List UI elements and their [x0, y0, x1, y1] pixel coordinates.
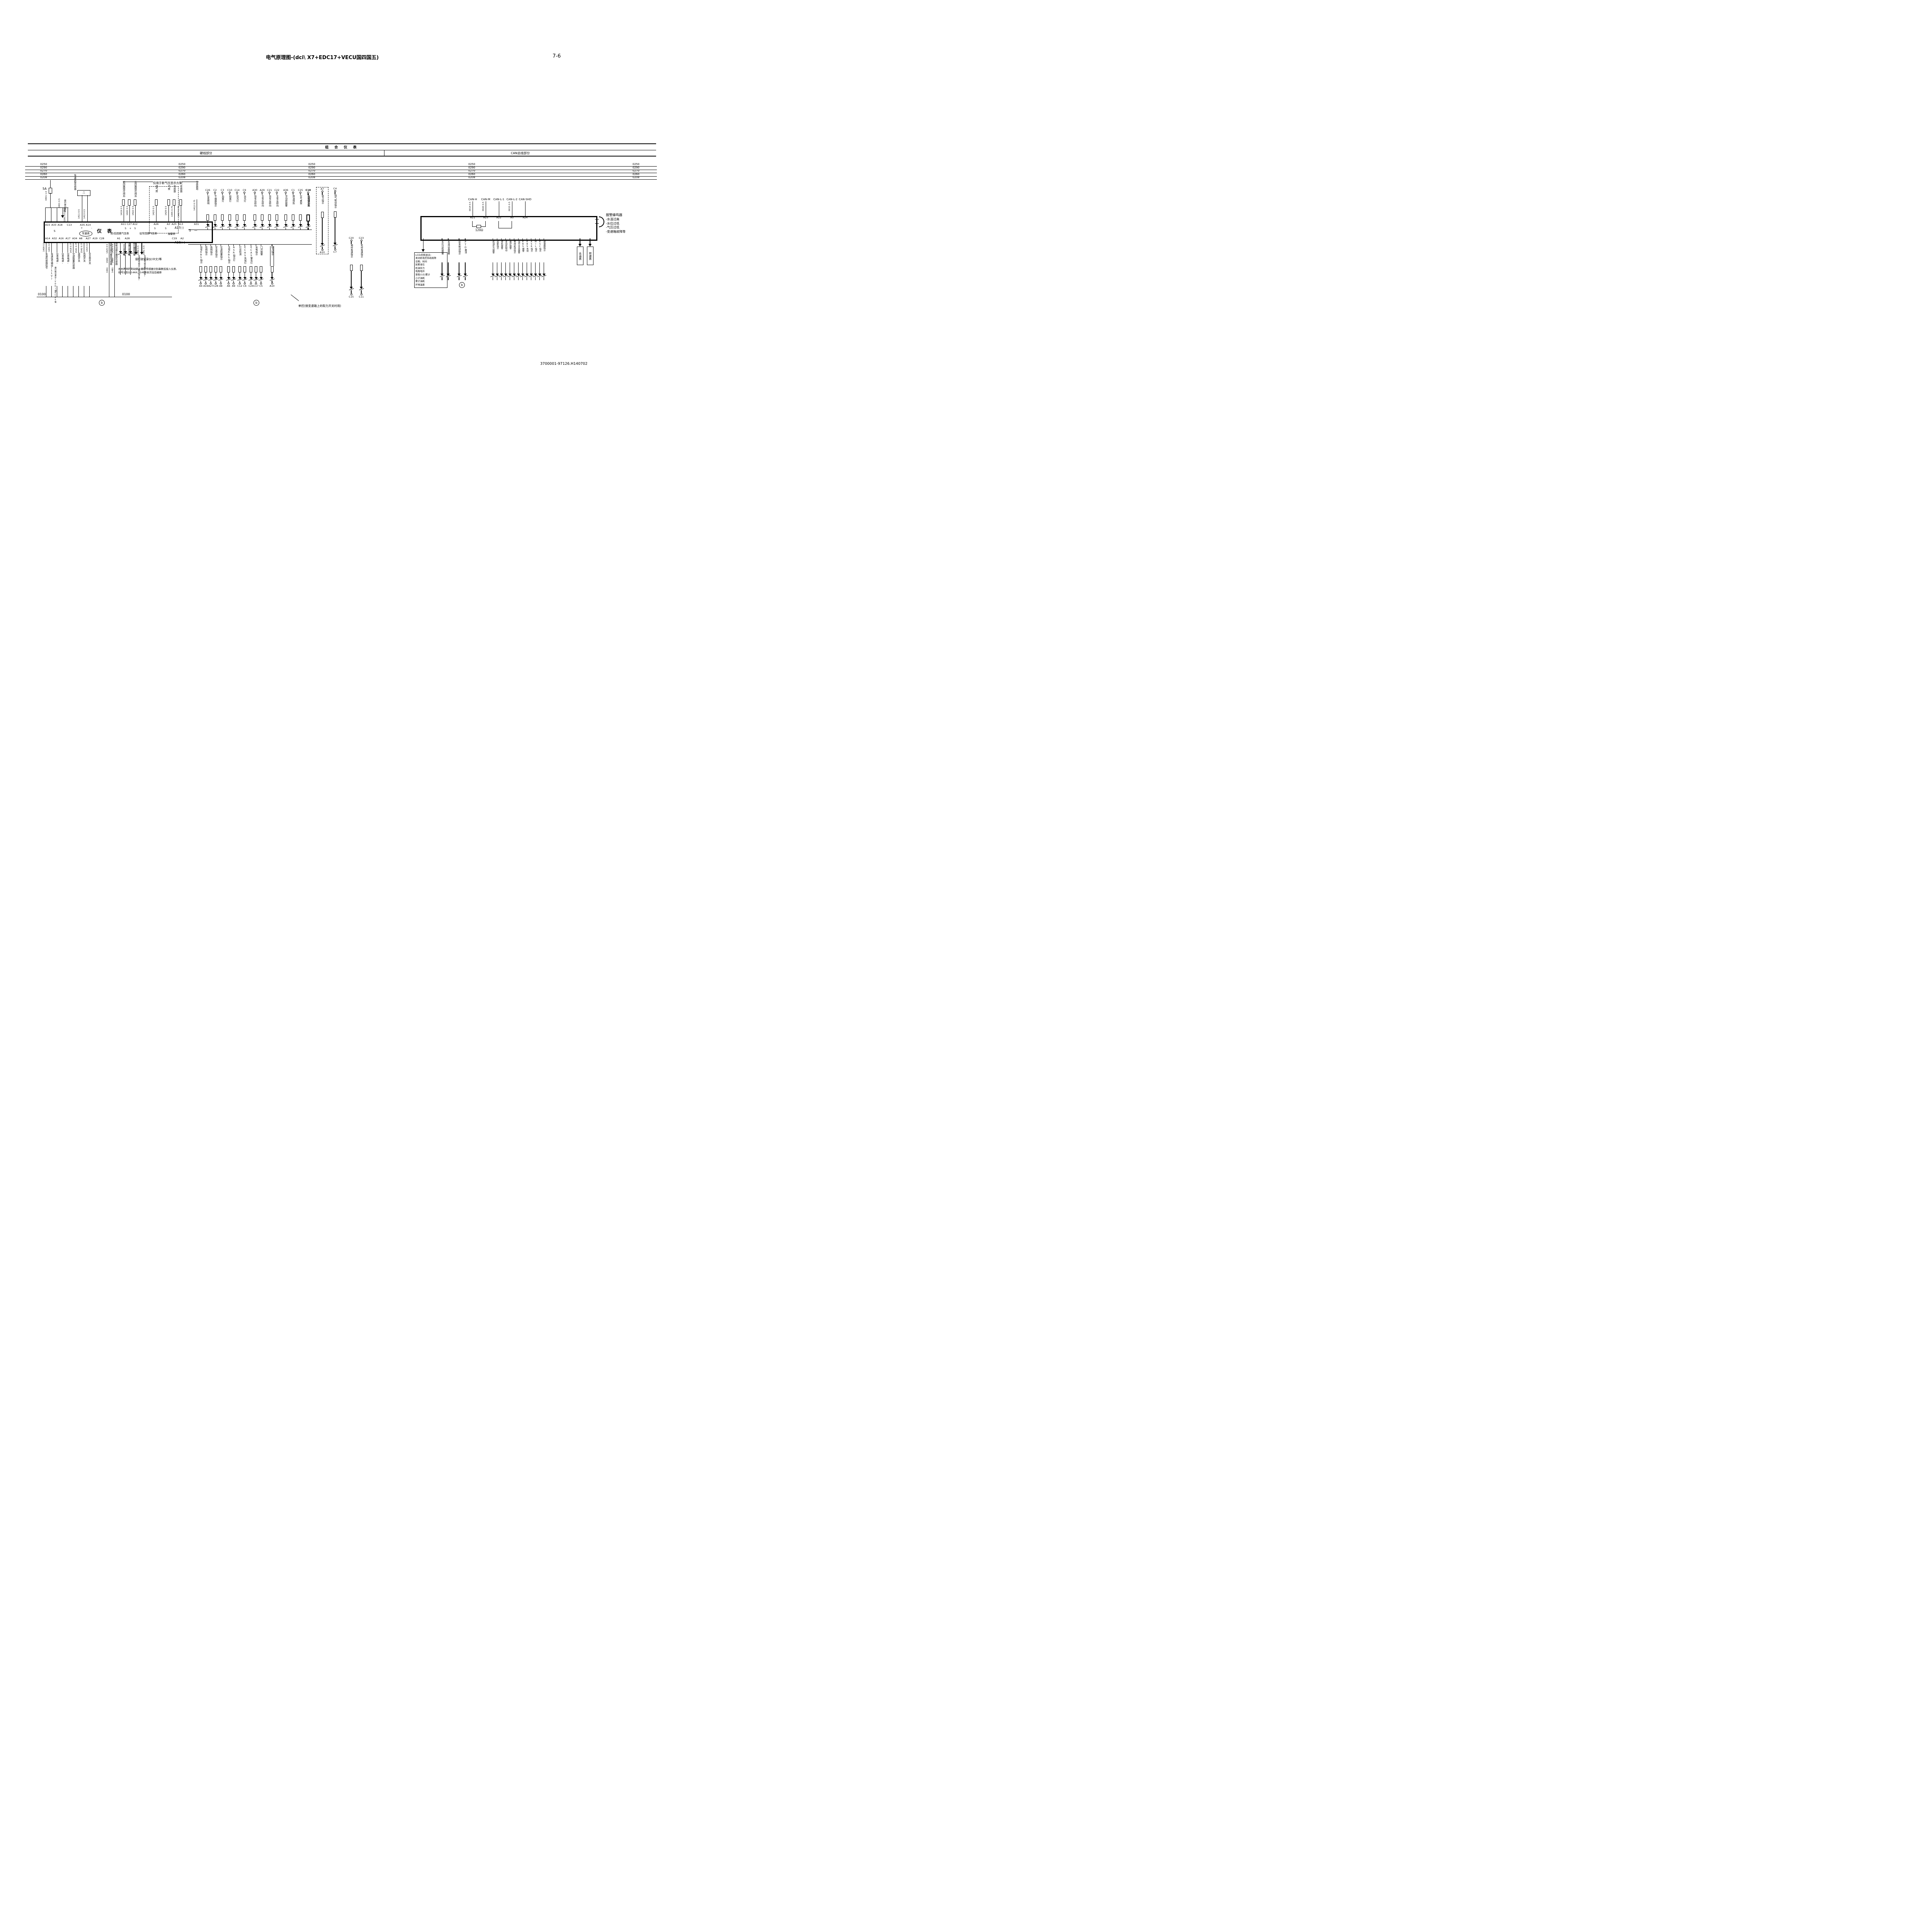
wire-line — [87, 195, 88, 221]
indicator-label: 机油压力报警 — [492, 241, 494, 262]
wire-number: 1409 0.5 — [43, 242, 46, 252]
indicator-column: C1 燃油预热 — [289, 189, 297, 230]
wire-line — [136, 242, 136, 252]
sensor-symbol — [128, 199, 131, 206]
led-icon — [298, 224, 303, 228]
can-column: CAN-H 0014 0.5 A21 — [466, 198, 479, 220]
resistor-symbol — [228, 214, 231, 221]
wire-line — [361, 271, 361, 287]
sensor-column: 传感器地 1412 0.75 A31 — [193, 181, 200, 226]
indicator-label: 水位过低报警 — [441, 241, 443, 262]
indicator-label: ASR指示灯 — [232, 246, 235, 266]
led-icon — [214, 277, 218, 281]
single-control-note: 单控(接变速箱上的取力开关时用) — [298, 304, 341, 308]
wire-line — [125, 242, 126, 251]
pin-label: C27 — [127, 223, 132, 226]
indicator-label: 轴间差速指示 — [350, 244, 352, 265]
buzzer-item: -水温过高 — [606, 218, 626, 222]
indicator-label: 水温过高报警 — [447, 241, 449, 262]
bus-line-negative — [188, 230, 312, 230]
can-columns: CAN-H 0014 0.5 A21 CAN-M 0020 0.5 A23 CA… — [466, 198, 532, 220]
diff-indicator-column: C23 轮间差速指示 C11 — [356, 237, 366, 298]
wire-line — [518, 262, 519, 274]
can-column: CAN-L-1 A22 — [492, 198, 505, 220]
wire-line — [522, 262, 523, 274]
wire-line — [286, 221, 286, 224]
bus-wire-number: 0290 — [633, 166, 639, 170]
io-label: 安全带开关 — [88, 253, 90, 286]
can-indicator-column: ASR指示 — [529, 238, 533, 280]
arrow-down-icon — [422, 249, 425, 252]
pin-label: C25 — [298, 189, 303, 192]
can-indicator-column: 机油压力报警 — [491, 238, 495, 280]
pin-label: A10 — [320, 251, 325, 254]
can-indicator-column: 驻车制动指示 — [456, 238, 462, 280]
wire-line — [211, 272, 211, 277]
indicator-label: 门开报警 — [260, 246, 262, 266]
can-indicator-columns: 驻车制动指示 PTO激活 — [456, 238, 468, 280]
indicator-label: 主车左转向 — [276, 195, 278, 214]
indicator-column: 高档指示 A27 — [208, 244, 213, 288]
bottom-columns: 1409 0.5 车速传感器信号 1431 0.5 车速信号输出(11V) 仪表… — [43, 242, 92, 297]
wire-number: 0020 0.5 — [483, 202, 485, 211]
wire-line — [595, 223, 599, 224]
wire-line — [493, 262, 493, 274]
warning-led-column: 油量过低报警 — [123, 242, 128, 284]
wire-line — [510, 277, 510, 280]
pin-label: A23 — [483, 216, 488, 219]
bottom-pin-group: C19A2 — [172, 237, 189, 240]
indicator-columns: 灯丝检测 C12 ECAS失效灯 C6 — [237, 244, 247, 288]
circle-b-mark: b — [459, 282, 465, 288]
wire-line — [498, 228, 512, 228]
indicator-columns: A36 浮动桥报警 C1 燃油预热 C25 — [282, 189, 304, 230]
wire-line — [590, 238, 590, 244]
resistor-symbol — [292, 214, 294, 221]
indicator-column: C22 主车左转向 — [273, 189, 281, 230]
document-number: 3700001-97126.H140702 — [540, 362, 587, 366]
wire-line — [580, 238, 580, 244]
io-label: 车速传感器信号 — [45, 253, 47, 286]
led-icon — [333, 243, 337, 246]
wire-line — [261, 272, 261, 277]
pin-label: A14 — [86, 223, 91, 226]
pin-label: A33 — [51, 223, 56, 226]
arrow-down-icon — [588, 244, 592, 247]
wire-line — [497, 277, 497, 280]
indicator-column: ECAS警告灯 C24 — [248, 244, 253, 288]
io-column: 1431 0.5 车速信号输出(11V) — [49, 242, 54, 297]
pin-label: C20 — [349, 237, 354, 240]
bus-wire-labels: 02500290027002600208 — [179, 163, 185, 179]
can-label: CAN-M — [481, 198, 490, 201]
indicator-column: C25 空气悬架 — [297, 189, 304, 230]
gauge-label: 驻车回路气压表 — [139, 232, 157, 235]
resistor-symbol — [250, 266, 252, 272]
indicator-column: C21 挂车左转向 — [266, 189, 273, 230]
io-label: 仪表电源- — [61, 253, 63, 286]
circle-b-mark: b — [253, 300, 259, 306]
wire-line — [230, 221, 230, 224]
pin-label: C4 — [333, 187, 337, 190]
bus-wire-number: 0270 — [468, 169, 475, 173]
wire-line — [472, 221, 473, 226]
wire-line — [25, 176, 657, 177]
wire-line — [535, 277, 536, 280]
pto-box-column: A7 取力指示 A10 — [316, 187, 328, 254]
led-icon — [349, 287, 354, 290]
indicator-column: ASR指示灯 A9 — [231, 244, 236, 288]
bus-wire-number: 0250 — [179, 163, 185, 166]
sensor-symbol — [167, 199, 170, 206]
pin-label: C18 — [306, 189, 311, 192]
pin-label: A16 — [59, 237, 66, 240]
exhaust-column-wrap: C4 排气制动指示 C7 — [329, 187, 341, 254]
resistor-symbol — [334, 211, 337, 218]
recorder-note: 接行驶记录仪(中文)等 — [135, 257, 162, 261]
pin-label: C15 — [349, 295, 354, 298]
pin-label: A17 — [66, 237, 73, 240]
pin-label: A15 — [45, 223, 50, 226]
wire-line — [269, 221, 270, 224]
can-indicator-column: MIL指示 — [533, 238, 537, 280]
pin-label: A3 — [167, 223, 170, 226]
wire-line — [68, 208, 68, 221]
bus-wire-number: 0260 — [179, 173, 185, 176]
wire-line — [233, 272, 234, 277]
box-s2: S — [154, 227, 156, 230]
bus-wire-number: 0250 — [468, 163, 475, 166]
mirror-heat-column-wrap: C18 后视镜加热 — [304, 189, 312, 230]
note-arrow-line — [291, 294, 299, 301]
pin-label: A34 — [72, 237, 79, 240]
indicator-column: 充电指示 C17 — [253, 244, 259, 288]
wire-number: 1418 0.75 — [70, 242, 73, 253]
led-icon — [253, 224, 257, 228]
sensor-columns: 前回路限压阀后 1419 0.5 A11 1420 0.5 C27 后回路限压阀… — [121, 181, 138, 226]
indicator-label: 燃油预热 — [292, 195, 294, 214]
wire-line — [216, 272, 216, 277]
wire-number: 1423 0.5 — [153, 206, 155, 216]
led-icon — [259, 277, 263, 281]
box-sps: S + S — [125, 227, 137, 230]
indicator-label: EBS失效 — [526, 241, 528, 262]
buzzer-item: -变速箱故障等 — [606, 230, 626, 234]
wire-number: 14A1 0.5 — [143, 242, 146, 255]
pto-column-wrap: 取力指示 A10 — [269, 244, 275, 288]
indicator-label: 挂车右转向 — [253, 195, 256, 214]
can-label: CAN-L-1 — [493, 198, 504, 201]
wire-line — [272, 272, 272, 277]
warning-led-columns: 气压过低报警 油量过低报警 蹄片磨损报警 — [118, 242, 133, 284]
wire-line — [245, 272, 245, 277]
led-icon — [463, 274, 468, 277]
pin-label: C7 — [333, 250, 337, 254]
resistor-symbol — [284, 214, 287, 221]
wire-number: 14B1 — [112, 266, 114, 273]
resistor-symbol — [268, 214, 271, 221]
diff-indicator-column: C20 轴间差速指示 C15 — [346, 237, 356, 298]
indicator-column: 安全带指示 C28 — [213, 244, 218, 288]
indicator-label: 轮间差速指示 — [360, 244, 362, 265]
indicator-label: 缓速器指示 — [543, 241, 545, 262]
can-indicator-column: EBS报警 — [520, 238, 525, 280]
header-band: 组 合 仪 表 硬线部分 CAN总线部分 — [28, 143, 656, 157]
wire-line — [201, 272, 201, 277]
indicator-label: 干燥器指示 — [214, 195, 216, 214]
wire-line — [522, 277, 523, 280]
led-icon — [306, 224, 310, 228]
pin-label: A31 — [194, 223, 199, 226]
wire-line — [351, 290, 351, 293]
can-indicator-column: 水温过高报警 — [445, 238, 451, 280]
speed-output-column: 14A0 0.5 车速信号输出(集电极开路) — [134, 242, 140, 284]
wire-line — [595, 219, 599, 220]
resistor-symbol — [209, 266, 212, 272]
pin-label: C28 — [213, 284, 218, 288]
wire-line — [262, 221, 262, 224]
led-icon — [220, 224, 224, 228]
brake-sensor-label: 右制动蹄片磨损传感器 — [115, 242, 117, 295]
indicator-column: 空滤阻塞指示 A8 — [218, 244, 223, 288]
wire-line — [527, 277, 527, 280]
wire-line — [442, 277, 442, 280]
speed-output-column: 14A1 0.5 车速信号输出地(预留) — [140, 242, 146, 284]
indicator-label: 主车ABS指示 — [227, 246, 230, 266]
wire-number: 1413 0.5 — [84, 197, 86, 219]
indicator-label: MIL指示 — [534, 241, 537, 262]
wire-line — [531, 262, 531, 274]
wire-number: 14A0 0.5 — [138, 242, 140, 255]
pin-label: C17 — [253, 284, 259, 288]
page-number: 7-6 — [553, 53, 561, 59]
brake-note-line2: 线号分别以14AX、14BX依次往后编排 — [118, 271, 177, 274]
wire-number: 1419 0.5 — [121, 206, 123, 216]
led-icon — [267, 224, 272, 228]
indicator-label: 近光灯 — [236, 195, 238, 214]
wire-line — [501, 262, 502, 274]
io-label: 高档开关 — [77, 253, 80, 286]
led-icon — [275, 224, 279, 228]
io-label: 空滤阻塞传感器 — [72, 253, 74, 286]
sensor-symbol — [134, 199, 136, 206]
wire-number: 1415 0.5 — [87, 242, 89, 252]
exhaust-indicator-column: C4 排气制动指示 C7 — [329, 187, 341, 254]
can-column: CAN-L-2 0015 0.5 A5 — [505, 198, 519, 220]
pin-label: A32 — [52, 237, 59, 240]
indicator-column: 灯丝检测 C12 — [237, 244, 242, 288]
wire-line — [51, 208, 51, 221]
resistor-symbol — [219, 266, 222, 272]
sensor-symbol — [155, 199, 158, 206]
pin-label: A28 — [125, 237, 133, 240]
pin-label: C23 — [359, 237, 364, 240]
gauge-label: 水温表 — [578, 252, 581, 260]
bus-wire-number: 0250 — [308, 163, 315, 166]
bus-wire-labels: 02500290027002600208 — [308, 163, 315, 179]
pin-label: A29 — [260, 189, 265, 192]
wire-line — [498, 221, 499, 228]
bus-wire-labels: 02500290027002600208 — [40, 163, 47, 179]
resistor-symbol — [232, 266, 235, 272]
wire-line — [493, 277, 493, 280]
bus-wire-number: 0260 — [468, 173, 475, 176]
bus-wire-number: 0250 — [633, 163, 639, 166]
wire-line — [141, 242, 142, 252]
indicator-label: 空气悬架 — [299, 195, 301, 214]
can-label: CAN-H — [468, 198, 477, 201]
wire-line — [485, 221, 486, 226]
pin-label: A12 — [133, 223, 138, 226]
pin-label: A25 — [172, 223, 177, 226]
led-icon — [440, 274, 444, 277]
indicator-column: A36 浮动桥报警 — [282, 189, 289, 230]
io-column: 1541 0.75 高档开关 — [76, 242, 81, 297]
wire-number: 14A0 — [107, 256, 109, 263]
bus-wire-number: 0290 — [468, 166, 475, 170]
indicator-column: C26 仪表照明 — [204, 189, 211, 230]
pin-label: C21 — [267, 189, 272, 192]
pin-label: C1 — [291, 189, 295, 192]
led-icon — [542, 274, 546, 277]
pin-label: A1 — [117, 237, 125, 240]
pto-indicator-column: 取力指示 A10 — [269, 244, 275, 288]
wire-line — [527, 262, 527, 274]
gauge-columns: 水温表 转速表 — [575, 238, 595, 265]
buzzer-block: 报警蜂鸣器 -水温过高-水位过低-气压过低-变速箱故障等 — [606, 213, 626, 234]
brake-note-line1: 左右两侧的制动蹄片磨损传感器分别串联后接入仪表, — [118, 267, 177, 271]
led-icon — [359, 287, 364, 290]
bus-wire-number: 0250 — [40, 163, 47, 166]
bus-wire-number: 0290 — [40, 166, 47, 170]
lcd-item: 环境温度 — [415, 284, 446, 287]
pin-label: A9 — [232, 284, 235, 288]
wire-line — [237, 221, 237, 224]
schematic-page: 电气原理图-(dci\ X7+EDC17+VECU国四国五) 7-6 组 合 仪… — [0, 0, 678, 479]
led-icon — [213, 224, 217, 228]
terminating-resistor-icon — [476, 225, 481, 228]
indicator-column: C3 后雾灯 — [219, 189, 226, 230]
resistor-symbol — [227, 266, 230, 272]
pin-label: A8 — [79, 237, 86, 240]
led-icon — [243, 277, 247, 281]
pin-label: C5 — [259, 284, 263, 288]
pin-label: C2 — [213, 189, 217, 192]
ground-label: 0100 — [122, 293, 130, 296]
bus-wire-number: 0290 — [179, 166, 185, 170]
wire-line — [514, 262, 514, 274]
io-column: 1542 0.75 低档开关 — [81, 242, 87, 297]
indicator-column: C14 近光灯 — [233, 189, 241, 230]
header-group-label: 组 合 仪 表 — [28, 144, 656, 150]
can-column: CAN-M 0020 0.5 A23 — [479, 198, 492, 220]
resistor-symbol — [271, 266, 274, 272]
bus-wire-number: 0208 — [468, 176, 475, 179]
can-indicator-column: 油中含水报警 — [516, 238, 520, 280]
wire-line — [206, 272, 206, 277]
wire-number: 1541 0.75 — [76, 242, 78, 253]
indicator-column: 门开报警 C5 — [259, 244, 264, 288]
circle-b-mark: b — [99, 300, 105, 306]
indicator-label: 驻车制动指示 — [458, 241, 460, 262]
sensor-label: 后回路限压阀后 — [134, 181, 136, 199]
wire-line — [361, 290, 361, 293]
indicator-label: 后视镜加热 — [307, 195, 309, 214]
can-indicator-column: 维护报警 — [508, 238, 512, 280]
led-icon — [260, 224, 264, 228]
gauge-box: 转速表 — [587, 247, 594, 265]
wire-line — [256, 272, 256, 277]
gauge-column: 水温表 — [575, 238, 585, 265]
led-icon — [206, 224, 210, 228]
box-s-label: S — [54, 230, 55, 233]
io-column: 仪表电源- — [65, 242, 70, 297]
bottom-pin-group: A14A32A16A17A34A8A27A19C28 — [45, 237, 106, 240]
diff-columns: C20 轴间差速指示 C15 C23 轮间差速指示 — [346, 237, 366, 298]
indicator-label: 仪表照明 — [206, 195, 209, 214]
brake-note: 左右两侧的制动蹄片磨损传感器分别串联后接入仪表, 线号分别以14AX、14BX依… — [118, 267, 177, 274]
indicator-label: EBS报警 — [522, 241, 524, 262]
wire-line — [63, 208, 63, 215]
can-column: CAN-SHD A24 — [519, 198, 532, 220]
led-icon — [320, 243, 325, 247]
gauge-box: 水温表 — [577, 247, 583, 265]
pin-label: A2 — [180, 237, 189, 240]
header-hardwired-label: 硬线部分 — [28, 150, 384, 156]
header-canbus-label: CAN总线部分 — [384, 150, 656, 156]
resistor-symbol — [206, 214, 209, 221]
sensor-columns: 水位传感器 1445 0.75 A25 油量传感器 1417 0.75 A13 — [171, 181, 184, 226]
ground-label: 0100 — [38, 293, 46, 296]
buzzer-item: -气压过低 — [606, 226, 626, 230]
pin-label: C19 — [172, 237, 180, 240]
gauge-column: 转速表 — [585, 238, 595, 265]
sensor-column: 油量传感器 1417 0.75 A13 — [177, 181, 184, 226]
bottom-pin-group: A1A28 — [117, 237, 133, 240]
indicator-label: 发动机制动 — [505, 241, 507, 262]
bus-wire-number: 0208 — [179, 176, 185, 179]
terminating-resistor-value: 120Ω — [475, 228, 483, 232]
led-icon — [291, 224, 295, 228]
resistor-symbol — [255, 266, 257, 272]
wire-line — [130, 242, 131, 251]
resistor-symbol — [214, 266, 217, 272]
pin-label: A27 — [208, 284, 213, 288]
speedometer-plus: + — [81, 227, 83, 230]
buzzer-title: 报警蜂鸣器 — [606, 213, 626, 218]
io-label: 低档开关 — [83, 253, 85, 286]
wire-number: 14A1 — [107, 266, 109, 273]
wire-line — [514, 277, 514, 280]
indicator-label: ASR指示 — [530, 241, 532, 262]
indicator-label: 主车右转向 — [261, 195, 263, 214]
indicator-label: ESC指示 — [539, 241, 541, 262]
wire-line — [45, 208, 46, 221]
wire-number: 14B0 — [112, 256, 114, 263]
wire-line — [50, 193, 51, 208]
resistor-symbol — [306, 214, 310, 221]
resistor-symbol — [214, 214, 216, 221]
wire-number: 0015 0.5 — [509, 202, 511, 211]
wire-line — [222, 221, 223, 224]
brake-sensor-column: 1426 0.5 14B0 14B1 右制动蹄片磨损传感器 — [112, 242, 117, 297]
resistor-symbol — [299, 214, 302, 221]
speed-output-columns: 14A0 0.5 车速信号输出(集电极开路) 14A1 0.5 车速信号输出地(… — [134, 242, 146, 284]
led-icon — [446, 274, 451, 277]
box-s3: S — [165, 227, 167, 230]
wire-number: 1411 0.5 — [78, 197, 81, 219]
wire-line — [277, 221, 277, 224]
